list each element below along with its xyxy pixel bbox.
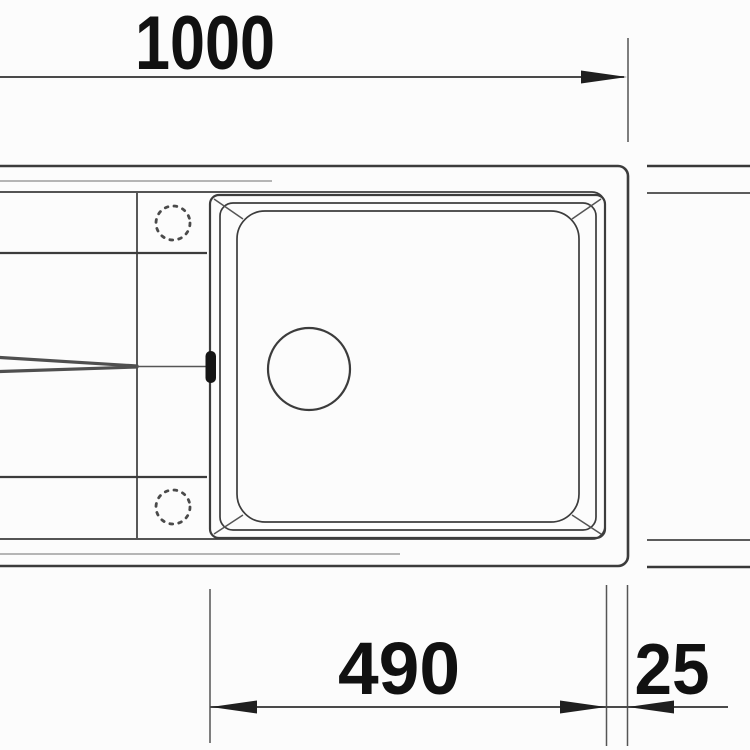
- overall-width-dimension: 1000: [0, 1, 628, 142]
- bowl-bottom-contour: [237, 211, 579, 522]
- bowl-mid-contour: [220, 203, 596, 530]
- rim-offset-label: 25: [635, 630, 710, 710]
- bowl-rim-outline: [210, 195, 605, 538]
- bowl-width-arrow-left-icon: [211, 701, 257, 714]
- overall-width-arrow-right-icon: [581, 71, 627, 84]
- bowl-corner-tick-bottom-left: [214, 515, 243, 534]
- sink-dimension-drawing: 1000: [0, 0, 750, 750]
- drainboard-groove-lower: [0, 367, 137, 372]
- bottom-dimensions: 490 25: [210, 585, 728, 746]
- technical-drawing-canvas: 1000: [0, 0, 750, 750]
- countertop-edges: [647, 166, 750, 567]
- drainboard-groove-upper: [0, 358, 137, 367]
- overall-width-label: 1000: [135, 1, 275, 86]
- sink-body: [0, 166, 628, 566]
- bowl-corner-tick-top-left: [214, 199, 243, 219]
- bowl-width-label: 490: [338, 627, 460, 710]
- drainboard: [0, 193, 207, 538]
- drain-hole: [268, 328, 350, 410]
- tap-hole-bottom-icon: [156, 490, 190, 524]
- sink-rim-inner-outline: [0, 192, 605, 539]
- overflow-mark: [206, 351, 217, 383]
- main-bowl: [206, 195, 606, 538]
- tap-hole-top-icon: [156, 206, 190, 240]
- bowl-width-arrow-right-icon: [560, 701, 606, 714]
- sink-outer-outline: [0, 166, 628, 566]
